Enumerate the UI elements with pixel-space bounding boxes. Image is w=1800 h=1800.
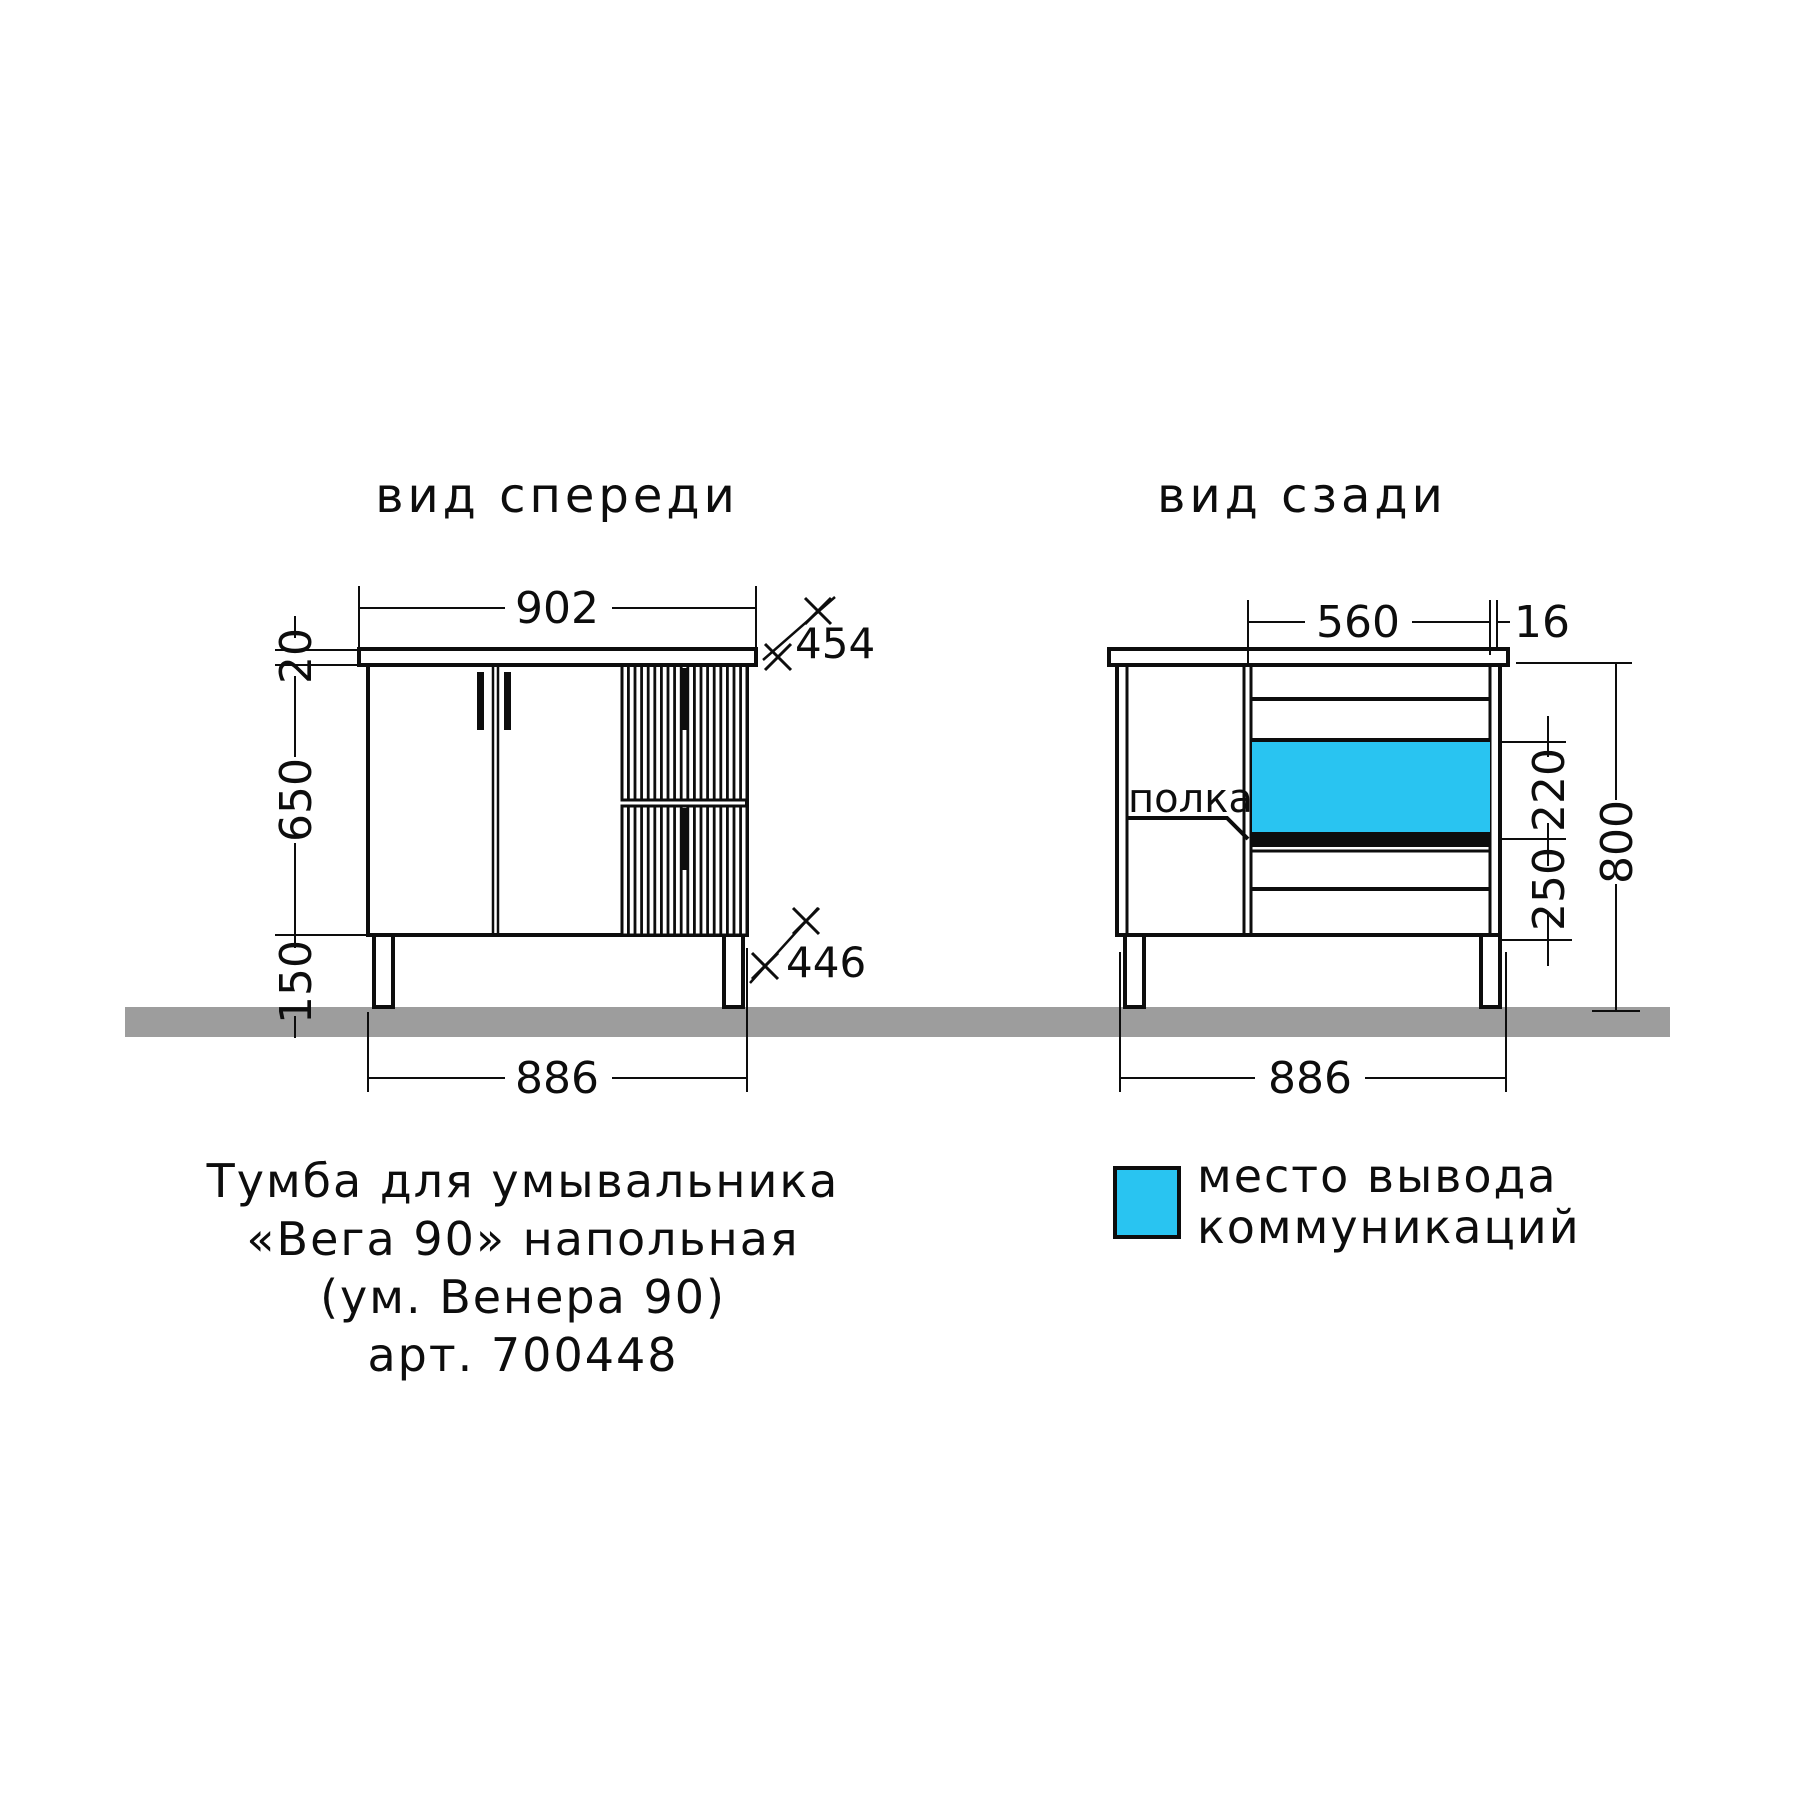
shelf-label: полка [1128, 776, 1253, 822]
dim-250-label: 250 [1524, 847, 1575, 931]
legend: место вывода коммуникаций [1115, 1149, 1581, 1254]
front-right-leg [724, 935, 743, 1007]
dim-454-label: 454 [795, 619, 875, 668]
caption-line-4: арт. 700448 [367, 1328, 678, 1382]
top-drawer-handle-slot [680, 668, 689, 730]
dim-446-label: 446 [786, 938, 866, 987]
right-door-handle [504, 672, 511, 730]
legend-line-1: место вывода [1197, 1149, 1558, 1203]
back-countertop [1109, 649, 1508, 665]
legend-line-2: коммуникаций [1197, 1200, 1581, 1254]
legend-swatch [1115, 1168, 1179, 1237]
dim-886-front-label: 886 [515, 1053, 599, 1104]
caption-line-2: «Вега 90» напольная [246, 1212, 799, 1266]
front-countertop [359, 649, 756, 665]
dim-20-label: 20 [271, 628, 322, 684]
dim-16-label: 16 [1514, 597, 1570, 648]
back-view-title: вид сзади [1157, 468, 1447, 524]
caption-line-1: Тумба для умывальника [206, 1154, 840, 1208]
dim-902-label: 902 [515, 583, 599, 634]
back-view: вид сзади полка [1109, 468, 1508, 1007]
dim-150-label: 150 [271, 940, 322, 1024]
bottom-drawer-handle-slot [680, 808, 689, 870]
front-view-title: вид спереди [375, 468, 739, 524]
front-left-leg [374, 935, 393, 1007]
front-view: вид спереди [359, 468, 756, 1007]
shelf-edge-bar [1252, 832, 1490, 847]
dim-220-label: 220 [1524, 748, 1575, 832]
floor-line [125, 1007, 1670, 1037]
back-left-leg [1125, 935, 1144, 1007]
technical-drawing-page: вид спереди 902 20 650 [0, 0, 1800, 1800]
dim-650-label: 650 [271, 758, 322, 842]
dim-560-label: 560 [1316, 597, 1400, 648]
caption: Тумба для умывальника «Вега 90» напольна… [206, 1154, 840, 1382]
communications-outlet-zone [1252, 742, 1490, 832]
left-door-handle [477, 672, 484, 730]
dim-800-label: 800 [1592, 800, 1643, 884]
caption-line-3: (ум. Венера 90) [320, 1270, 726, 1324]
drawing-svg: вид спереди 902 20 650 [0, 0, 1800, 1800]
back-right-leg [1481, 935, 1500, 1007]
dim-886-back-label: 886 [1268, 1053, 1352, 1104]
